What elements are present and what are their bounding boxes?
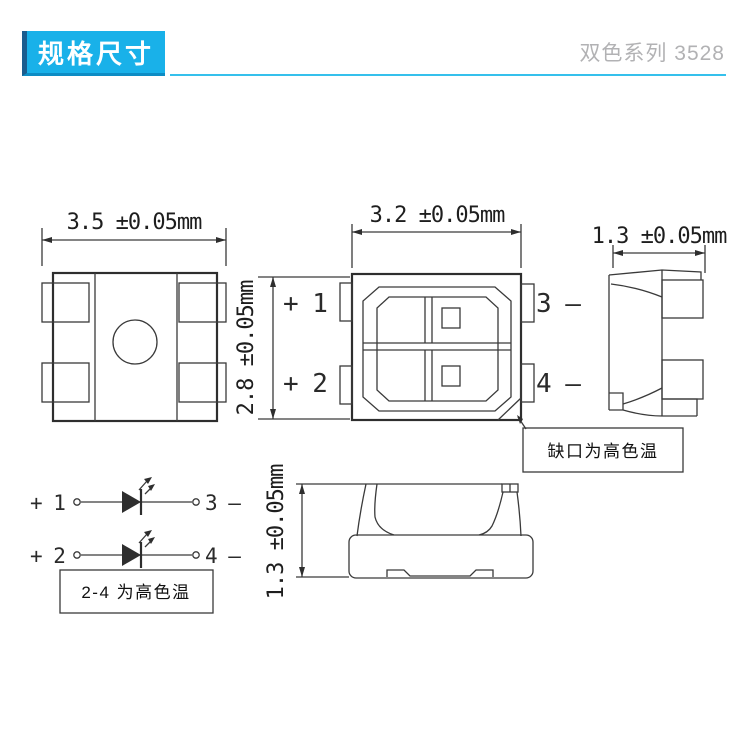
center-mark [113,320,157,364]
pad-left-2 [340,366,352,404]
top-view: 3.2 ±0.05mm 2.8 ±0.05mm + 1 + 2 [234,203,581,429]
lens-curve-top [611,284,662,297]
body-bottom-edge [609,410,697,416]
pin1-label: + 1 [283,289,327,319]
body-columns [95,273,177,421]
chip-divider [425,297,432,401]
base-feet-profile [387,570,493,577]
dim-arrow-left [613,250,623,256]
dim-front-height: 1.3 ±0.05mm [264,464,289,599]
terminal-2 [74,552,80,558]
pin-right-outer [517,492,521,536]
dim-arrow-left [352,229,362,235]
terminal-4 [193,552,199,558]
terminal-3 [193,499,199,505]
cavity-divider [363,343,511,350]
reflector-inner [377,297,498,401]
side-view: 1.3 ±0.05mm [592,224,727,416]
bottom-view: 3.5 ±0.05mm [42,210,226,421]
spec-sheet-page: 规格尺寸 双色系列 3528 3.5 ±0.05mm 3.2 ±0.05mm 2… [0,0,750,750]
corner-notch [498,398,521,420]
pin-left-outer [357,484,366,536]
dim-line [613,245,705,273]
lead-under [662,399,697,416]
pad-right-top [179,283,226,322]
pad-right-bottom [179,363,226,402]
body-top-edge [609,270,701,280]
pin2-label: + 2 [283,369,327,399]
dimension-drawing: 3.5 ±0.05mm 3.2 ±0.05mm 2.8 ±0.05mm [0,0,750,750]
package-body [53,273,217,421]
pin-right-inner [479,492,503,535]
circuit-pin1: + 1 [30,491,65,515]
pad-left-1 [340,283,352,321]
dim-side-depth: 1.3 ±0.05mm [592,224,727,249]
terminal-1 [74,499,80,505]
circuit-diagram: + 1 3 — + 2 4 — 2-4 为高色温 [30,477,241,613]
dim-top-height: 2.8 ±0.05mm [234,280,259,415]
pin-left-inner [375,484,394,535]
dim-arrow-down [270,409,276,419]
dim-line [296,484,363,577]
notch-callout: 缺口为高色温 [523,428,683,472]
dim-arrow-left [42,237,52,243]
pad-left-top [42,283,89,322]
front-view: 1.3 ±0.05mm [264,464,533,599]
pad-left-bottom [42,363,89,402]
lead-top [662,280,703,318]
dim-arrow-up [270,277,276,287]
lead-bottom [662,360,703,399]
dim-arrow-down [299,567,305,577]
base-body [349,535,533,578]
led-triangle-1 [122,491,141,513]
circuit-pin4: 4 — [205,544,241,568]
pad-right-4 [521,364,534,402]
dim-arrow-up [299,484,305,494]
bond-pad-bottom [442,366,460,386]
standoff-step [609,393,623,410]
notch-note: 缺口为高色温 [548,442,659,461]
dim-arrow-right [216,237,226,243]
dim-arrow-right [511,229,521,235]
pad-right-3 [521,284,534,322]
dim-top-width: 3.2 ±0.05mm [370,203,505,228]
dim-bottom-width: 3.5 ±0.05mm [67,210,202,235]
pin4-label: 4 — [536,369,581,399]
polarity-note: 2-4 为高色温 [81,583,190,602]
pin3-label: 3 — [536,289,581,319]
reflector-outer [363,287,511,411]
bond-pad-top [442,308,460,328]
lens-curve-bottom [623,388,662,404]
dim-arrow-right [695,250,705,256]
circuit-pin2: + 2 [30,544,65,568]
dim-line-h [352,224,521,268]
led-triangle-2 [122,544,141,566]
circuit-pin3: 3 — [205,491,241,515]
